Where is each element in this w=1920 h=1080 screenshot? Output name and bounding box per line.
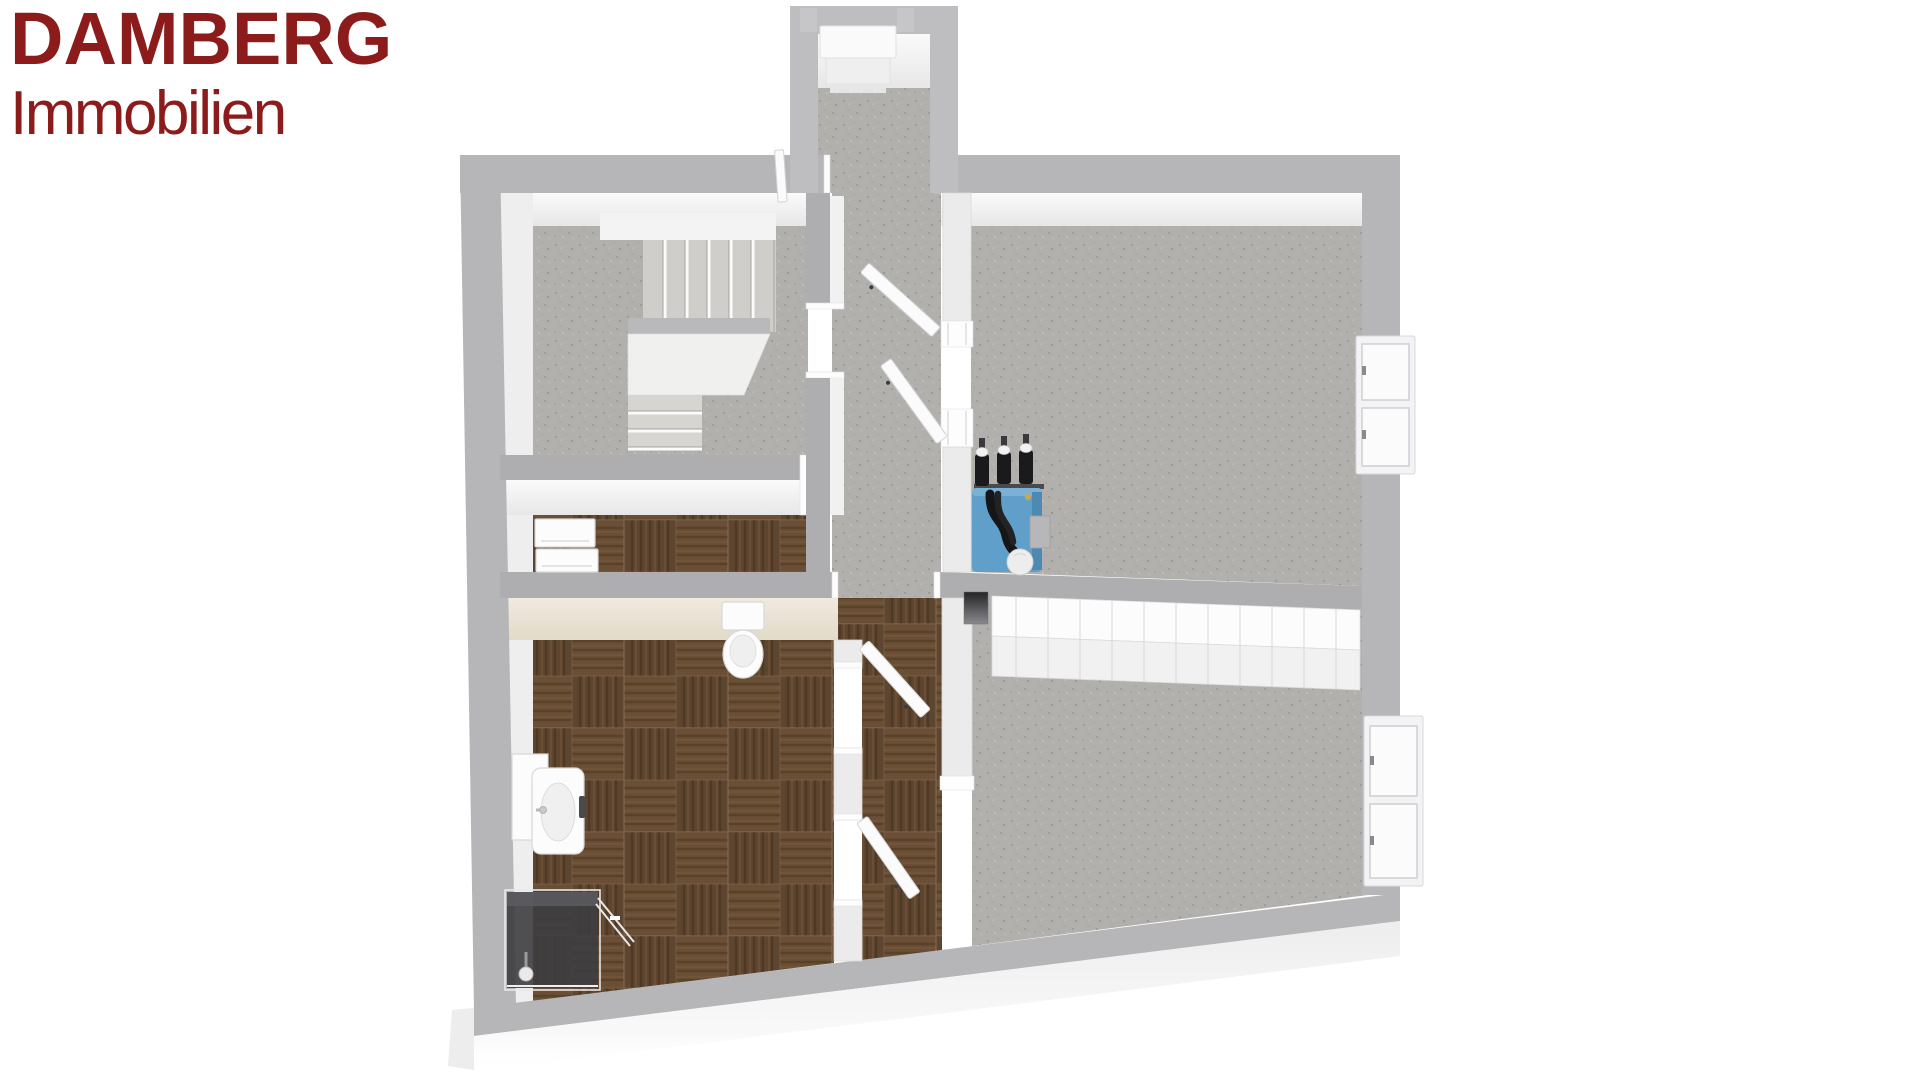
entry-door-post [897, 8, 914, 32]
doorway-cap [934, 572, 940, 598]
boiler-top-edge [972, 488, 1042, 496]
hallway-west-wall-mid [806, 378, 830, 515]
window-latch [1370, 756, 1374, 765]
toilet-tank [722, 602, 764, 630]
wall-hung-toilet [722, 602, 764, 678]
vanity-handle [579, 796, 585, 818]
top-wall-east [935, 155, 1400, 193]
wall-segment [834, 748, 862, 820]
north-wall-face-east [941, 193, 1366, 226]
window-latch [1370, 836, 1374, 845]
entry-threshold-floor [832, 158, 941, 226]
entry-door-slab [820, 26, 896, 58]
main-room-east-wall [834, 640, 862, 961]
toilet-bowl-inner [730, 635, 756, 667]
doorway-cap [824, 155, 830, 193]
hallway-west-wall-s [806, 515, 830, 572]
corridor-east-wall [942, 598, 972, 782]
storage-room-appliances [535, 519, 598, 572]
hallway-west-wall-face-mid [830, 378, 844, 515]
middle-wall-west [500, 572, 838, 598]
door-frame [941, 321, 973, 347]
wall-staircase-storage [500, 455, 830, 480]
doorway-cap [834, 662, 862, 668]
black-valve [997, 452, 1011, 484]
stair-winder-wall [628, 318, 770, 395]
window-latch [1362, 430, 1366, 439]
hallway-west-wall-n [806, 193, 830, 303]
window-pane [1362, 408, 1409, 466]
washbasin-vanity [512, 754, 585, 854]
hallway-west-wall-face-n [830, 196, 844, 303]
shower-head [519, 967, 533, 981]
wall-segment [834, 640, 862, 662]
appliance-box [536, 549, 598, 572]
window-northeast [1356, 336, 1415, 474]
door-frame [941, 409, 973, 447]
wall-segment [834, 900, 862, 961]
top-wall-west [460, 155, 830, 193]
vestibule-wall-east [930, 6, 958, 193]
entry-door-post [800, 8, 817, 32]
black-valve [975, 454, 989, 486]
southwest-plinth [448, 1008, 474, 1070]
storage-room-north-face [500, 480, 830, 515]
black-valve [1019, 450, 1033, 484]
vestibule-wall-west [790, 6, 818, 193]
valve-cap [1020, 444, 1032, 453]
valve-cap [998, 446, 1010, 455]
shower-glass-top [507, 892, 598, 906]
stair-top-landing [600, 213, 776, 240]
page: DAMBERG Immobilien [0, 0, 1920, 1080]
doorway-cap [834, 748, 862, 754]
window-pane [1362, 344, 1409, 400]
entry-step-lip [830, 84, 886, 93]
hallway-east-wall [940, 193, 974, 790]
doorway-cap [806, 303, 844, 309]
valve-cap [976, 448, 988, 457]
chimney-flue [964, 592, 988, 624]
entry-step [826, 58, 890, 84]
built-in-cabinet-row [992, 596, 1360, 690]
window-pane [1370, 804, 1417, 878]
wall-segment [943, 447, 971, 572]
faucet [540, 807, 547, 814]
stair-lower-flight [628, 395, 702, 450]
doorway-cap [832, 572, 838, 598]
control-box [1030, 516, 1050, 548]
doorway-cap [806, 372, 844, 378]
brass-fitting [1025, 494, 1031, 500]
appliance-box [535, 519, 595, 547]
wall-segment [943, 193, 971, 323]
window-latch [1362, 366, 1366, 375]
shower-door-handle [610, 916, 620, 920]
floor-plan-rendering [0, 0, 1920, 1080]
doorway-cap [834, 900, 862, 906]
wall-end-cap [940, 776, 974, 790]
expansion-cylinder [1007, 549, 1033, 575]
doorway-cap [834, 814, 862, 820]
main-room-north-face [500, 598, 838, 640]
window-southeast [1364, 716, 1423, 886]
window-pane [1370, 726, 1417, 796]
